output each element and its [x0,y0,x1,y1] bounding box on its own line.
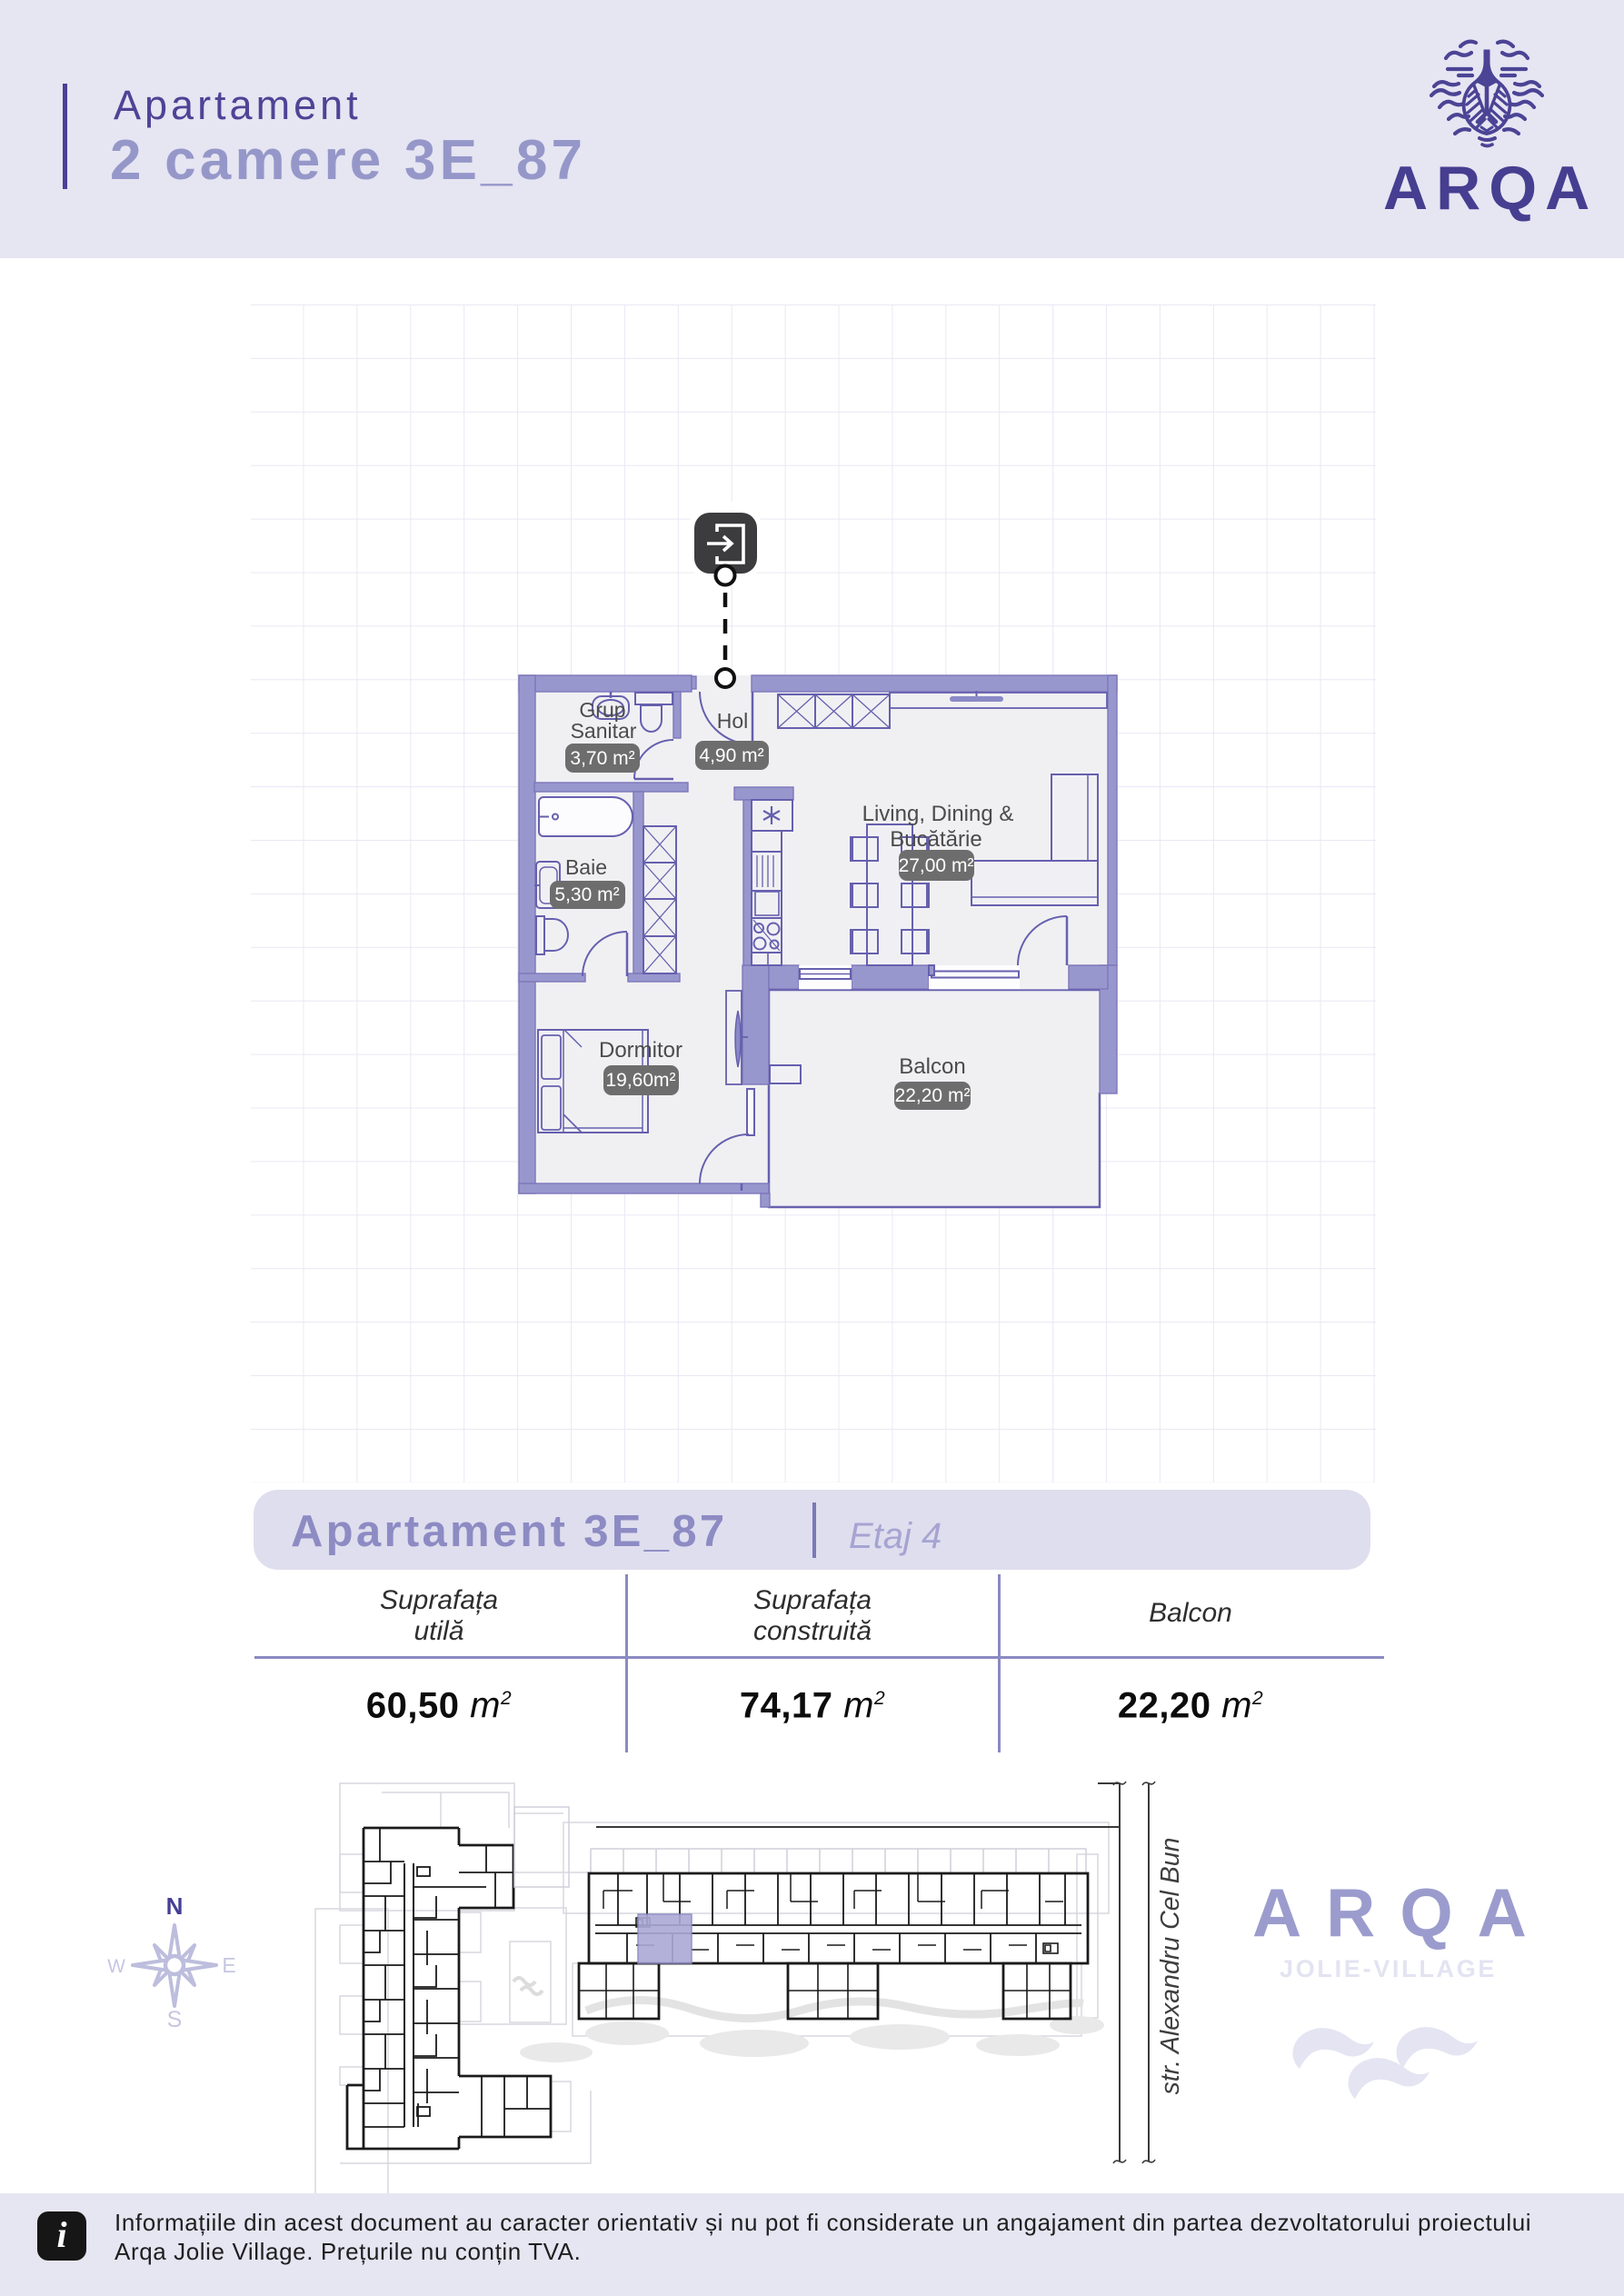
svg-text:Sanitar: Sanitar [571,719,637,743]
svg-text:5,30 m²: 5,30 m² [554,884,619,905]
svg-text:27,00 m²: 27,00 m² [899,855,974,876]
svg-text:Balcon: Balcon [899,1054,965,1079]
svg-text:22,20 m²: 22,20 m² [895,1085,971,1106]
svg-text:Living, Dining &: Living, Dining & [862,802,1014,826]
svg-text:E: E [222,1953,235,1977]
svg-text:Hol: Hol [717,709,749,733]
svg-text:Baie: Baie [565,855,607,879]
svg-text:str. Alexandru Cel Bun: str. Alexandru Cel Bun [1156,1837,1185,2094]
svg-text:N: N [166,1892,184,1920]
svg-text:S: S [167,2007,183,2032]
svg-text:3,70 m²: 3,70 m² [570,748,634,769]
svg-text:W: W [107,1956,125,1977]
svg-text:Bucătărie: Bucătărie [890,827,981,852]
svg-text:19,60m²: 19,60m² [605,1070,675,1091]
svg-text:4,90 m²: 4,90 m² [699,745,763,766]
svg-text:Dormitor: Dormitor [599,1038,682,1063]
